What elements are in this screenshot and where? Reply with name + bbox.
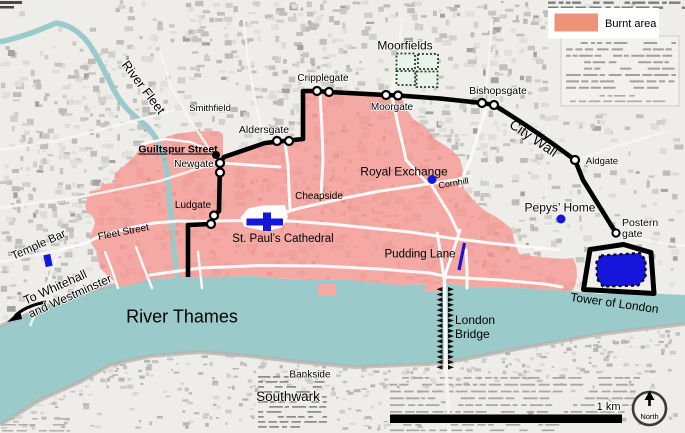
svg-text:Pudding Lane: Pudding Lane: [385, 249, 456, 261]
svg-text:Moorfields: Moorfields: [377, 39, 432, 53]
svg-text:1 km: 1 km: [597, 401, 621, 413]
svg-text:Burnt area: Burnt area: [605, 18, 657, 30]
svg-text:North: North: [640, 412, 658, 421]
svg-text:Aldersgate: Aldersgate: [239, 124, 289, 136]
svg-text:London: London: [455, 313, 495, 327]
svg-text:gate: gate: [622, 228, 643, 240]
svg-text:Cheapside: Cheapside: [295, 191, 343, 202]
svg-text:Royal Exchange: Royal Exchange: [360, 165, 448, 179]
svg-text:Aldgate: Aldgate: [586, 156, 618, 167]
svg-text:Smithfield: Smithfield: [189, 103, 231, 114]
svg-text:Moorgate: Moorgate: [371, 102, 414, 113]
svg-text:St. Paul’s Cathedral: St. Paul’s Cathedral: [232, 233, 333, 245]
svg-text:Bishopsgate: Bishopsgate: [469, 85, 527, 97]
svg-text:River Thames: River Thames: [126, 307, 238, 327]
svg-text:Newgate: Newgate: [174, 159, 214, 170]
svg-text:Guiltspur Street: Guiltspur Street: [138, 144, 218, 156]
svg-text:Cripplegate: Cripplegate: [297, 73, 349, 84]
svg-text:Bankside: Bankside: [289, 370, 331, 381]
svg-text:Ludgate: Ludgate: [175, 200, 212, 211]
svg-text:Southwark: Southwark: [256, 389, 320, 404]
svg-text:Bridge: Bridge: [455, 327, 490, 341]
svg-text:Pepys’ Home: Pepys’ Home: [525, 201, 596, 215]
